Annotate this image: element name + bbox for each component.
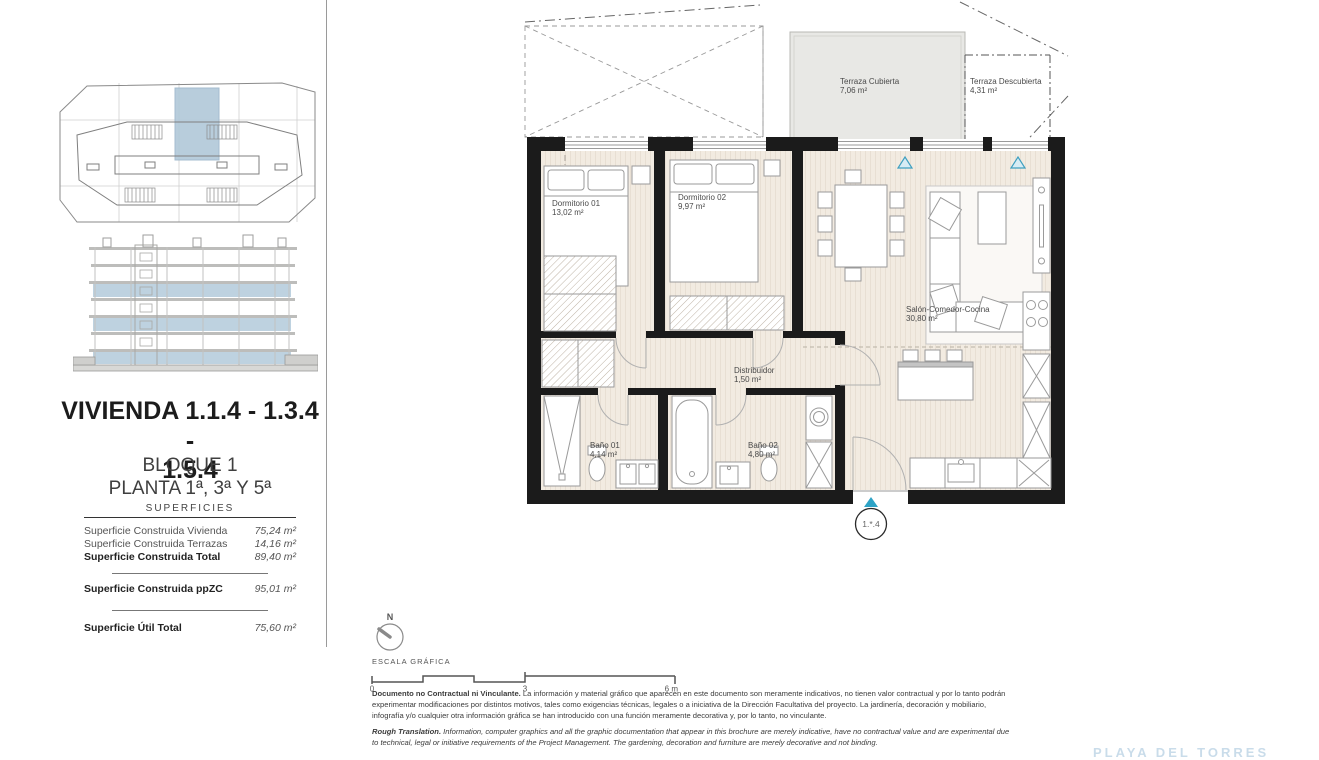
sofa-bottom xyxy=(956,297,1034,332)
surface-value: 75,60 m² xyxy=(255,622,296,635)
terraza-cubierta: Terraza Cubierta 7,06 m² xyxy=(790,32,965,145)
room-label: Dormitorio 01 xyxy=(552,199,601,208)
room-label: Distribuidor xyxy=(734,366,775,375)
building-elevation xyxy=(73,233,318,383)
wardrobe-dormitorio-02 xyxy=(670,296,784,330)
room-area: 4,80 m² xyxy=(748,450,775,459)
wardrobe-dormitorio-01 xyxy=(544,256,616,331)
table-row: Superficie Construida ppZC 95,01 m² xyxy=(84,583,296,596)
table-row: Superficie Construida Vivienda 75,24 m² xyxy=(84,525,296,538)
kitchen-island xyxy=(898,350,973,400)
highlighted-unit xyxy=(175,88,219,160)
room-label: Salón-Comedor-Cocina xyxy=(906,305,990,314)
room-label: Terraza Cubierta xyxy=(840,77,900,86)
surfaces-header: SUPERFICIES xyxy=(84,503,296,518)
surface-value: 14,16 m² xyxy=(255,538,296,551)
legal-lead-en: Rough Translation. xyxy=(372,727,441,736)
kitchen-counter xyxy=(910,458,1051,488)
legal-disclaimer-es: Documento no Contractual ni Vinculante. … xyxy=(372,688,1017,721)
room-area: 30,80 m² xyxy=(906,314,938,323)
block-label: BLOQUE 1 xyxy=(55,455,325,478)
shower-tray xyxy=(544,396,580,486)
north-label: N xyxy=(387,612,394,622)
kitchen-sink xyxy=(948,464,974,482)
legal-body-en: Information, computer graphics and all t… xyxy=(372,727,1009,747)
coffee-table xyxy=(978,192,1006,244)
elevation-roof-elements xyxy=(103,235,286,247)
surface-label: Superficie Útil Total xyxy=(84,622,182,635)
entrance-triangle-icon xyxy=(864,497,878,507)
tv-sideboard xyxy=(1033,178,1050,273)
site-key-plan xyxy=(57,80,322,230)
scale-caption: ESCALA GRÁFICA xyxy=(372,657,451,666)
room-area: 4,14 m² xyxy=(590,450,617,459)
legal-disclaimer-en: Rough Translation. Information, computer… xyxy=(372,726,1017,748)
room-area: 13,02 m² xyxy=(552,208,584,217)
elevation-core xyxy=(135,245,157,365)
scale-bar xyxy=(372,672,675,684)
surface-value: 89,40 m² xyxy=(255,551,296,564)
surface-label: Superficie Construida Terrazas xyxy=(84,538,227,551)
elevation-floor-slabs xyxy=(89,247,297,352)
room-area: 9,97 m² xyxy=(678,202,705,211)
table-row: Superficie Útil Total 75,60 m² xyxy=(84,622,296,635)
surfaces-table: SUPERFICIES Superficie Construida Vivien… xyxy=(84,503,296,635)
unit-subtitle: BLOQUE 1 PLANTA 1ª, 3ª Y 5ª xyxy=(55,455,325,501)
surface-label: Superficie Construida Vivienda xyxy=(84,525,227,538)
unit-title-line1: VIVIENDA 1.1.4 - 1.3.4 - xyxy=(55,397,325,456)
terraza-descubierta: Terraza Descubierta 4,31 m² xyxy=(965,55,1050,145)
room-area: 1,50 m² xyxy=(734,375,761,384)
surface-label: Superficie Construida ppZC xyxy=(84,583,223,596)
entrance-marker: 1.*.4 xyxy=(856,497,887,540)
legal-lead-es: Documento no Contractual ni Vinculante. xyxy=(372,689,521,698)
table-divider xyxy=(112,610,268,611)
floor-plan: Terraza Cubierta 7,06 m² Terraza Descubi… xyxy=(520,0,1070,555)
surface-label: Superficie Construida Total xyxy=(84,551,220,564)
room-area: 4,31 m² xyxy=(970,86,997,95)
kitchen-tall-units xyxy=(1023,292,1050,458)
room-area: 7,06 m² xyxy=(840,86,867,95)
floor-label: PLANTA 1ª, 3ª Y 5ª xyxy=(55,478,325,501)
brand-watermark: PLAYA DEL TORRES xyxy=(1093,745,1269,760)
scale-graphic: N ESCALA GRÁFICA 0 3 6 m xyxy=(362,606,682,692)
room-label: Dormitorio 02 xyxy=(678,193,727,202)
room-label: Baño 01 xyxy=(590,441,620,450)
toilet-bowl xyxy=(761,457,777,481)
surface-value: 95,01 m² xyxy=(255,583,296,596)
toilet-bowl xyxy=(589,457,605,481)
room-label: Baño 02 xyxy=(748,441,778,450)
upper-projection-box xyxy=(525,26,763,137)
table-row: Superficie Construida Terrazas 14,16 m² xyxy=(84,538,296,551)
unit-tag-text: 1.*.4 xyxy=(862,519,880,529)
table-divider xyxy=(112,573,268,574)
surface-value: 75,24 m² xyxy=(255,525,296,538)
room-label: Terraza Descubierta xyxy=(970,77,1042,86)
closet-hall xyxy=(542,340,614,387)
table-row: Superficie Construida Total 89,40 m² xyxy=(84,551,296,564)
panel-divider xyxy=(326,0,327,647)
